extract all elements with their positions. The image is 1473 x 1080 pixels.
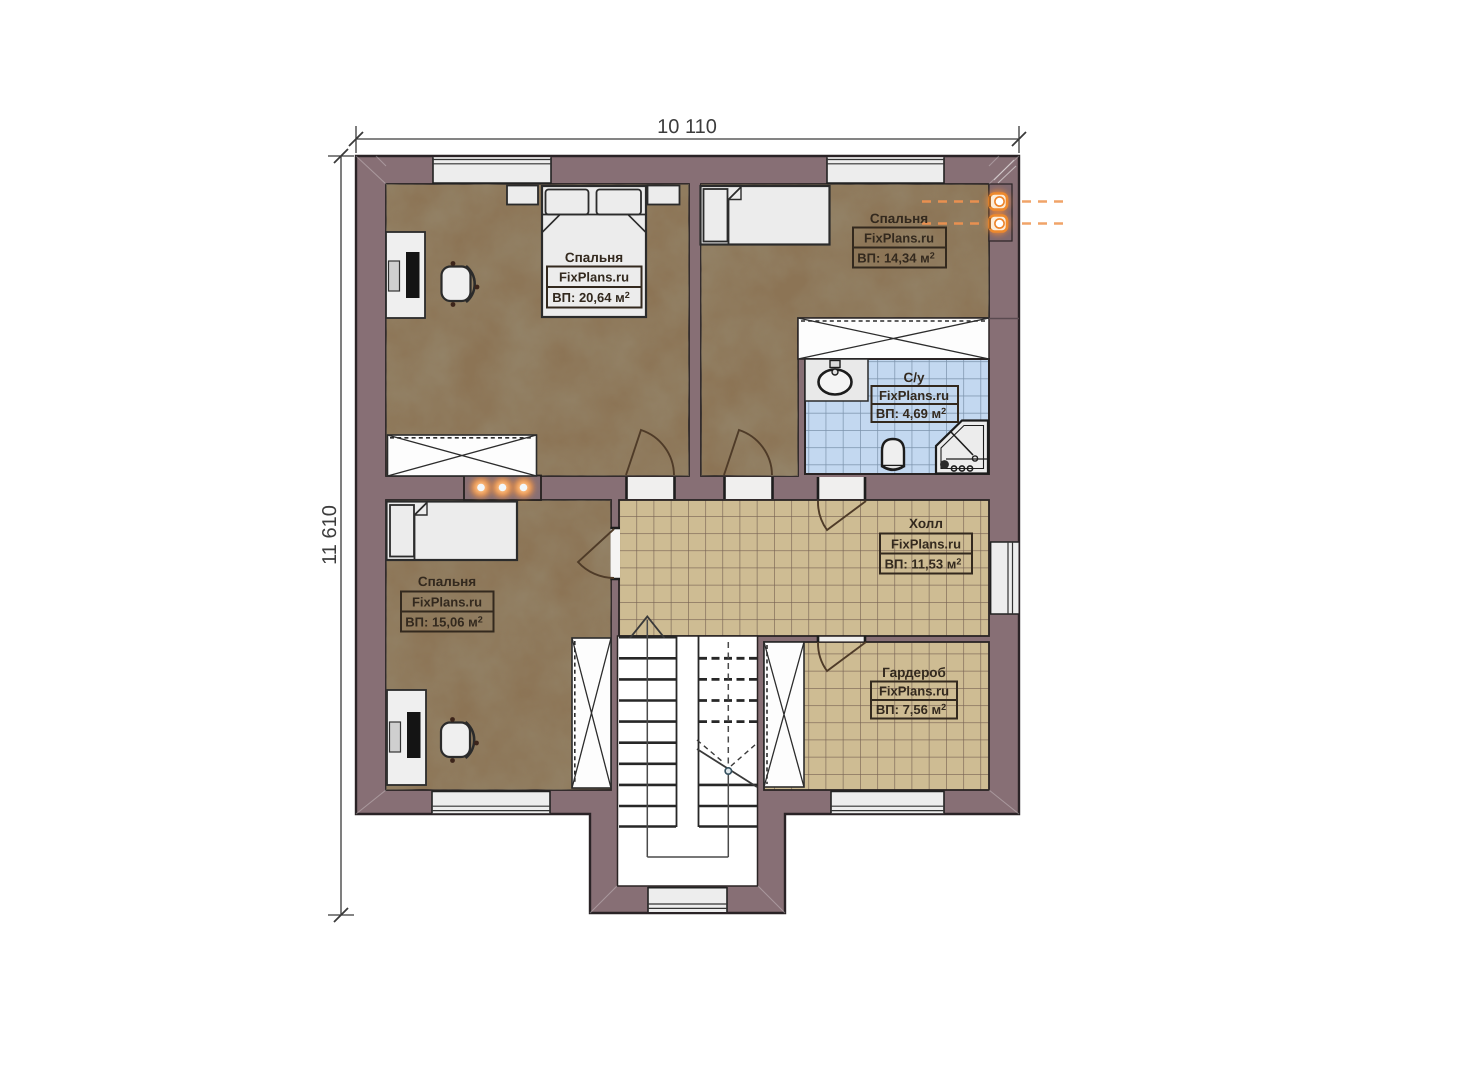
svg-text:ВП: 7,56 м2: ВП: 7,56 м2 [876,702,946,717]
svg-text:Спальня: Спальня [418,574,476,589]
svg-text:FixPlans.ru: FixPlans.ru [879,388,949,403]
svg-text:Холл: Холл [909,516,943,531]
svg-text:FixPlans.ru: FixPlans.ru [879,684,949,699]
svg-text:FixPlans.ru: FixPlans.ru [559,270,629,285]
svg-text:10 110: 10 110 [657,116,717,138]
svg-text:ВП: 4,69 м2: ВП: 4,69 м2 [876,406,946,421]
svg-text:С/у: С/у [903,370,925,385]
svg-text:FixPlans.ru: FixPlans.ru [864,231,934,246]
svg-text:11 610: 11 610 [319,505,341,565]
svg-text:Спальня: Спальня [870,211,928,226]
svg-text:FixPlans.ru: FixPlans.ru [891,537,961,552]
svg-text:Гардероб: Гардероб [882,665,946,680]
svg-text:ВП: 15,06 м2: ВП: 15,06 м2 [405,615,482,630]
svg-text:ВП: 11,53 м2: ВП: 11,53 м2 [885,557,962,572]
svg-text:Спальня: Спальня [565,250,623,265]
svg-text:ВП: 14,34 м2: ВП: 14,34 м2 [857,251,934,266]
svg-text:ВП: 20,64 м2: ВП: 20,64 м2 [552,290,629,305]
svg-text:FixPlans.ru: FixPlans.ru [412,595,482,610]
